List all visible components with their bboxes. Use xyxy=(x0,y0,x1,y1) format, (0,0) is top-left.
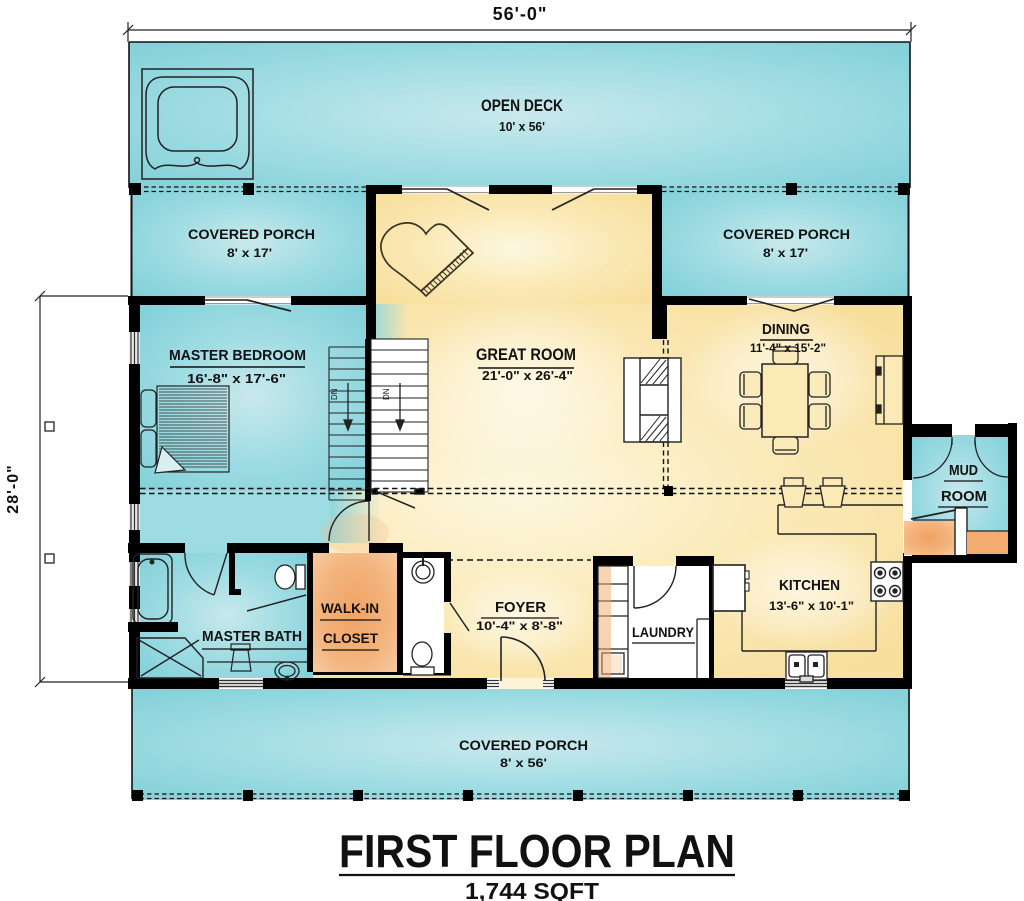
svg-text:GREAT ROOM: GREAT ROOM xyxy=(476,345,576,364)
svg-text:16'-8" x 17'-6": 16'-8" x 17'-6" xyxy=(187,372,286,386)
svg-text:MUD: MUD xyxy=(949,462,978,479)
svg-text:8' x 17': 8' x 17' xyxy=(227,248,272,260)
svg-text:21'-0" x 26'-4": 21'-0" x 26'-4" xyxy=(482,369,573,383)
svg-text:MASTER BEDROOM: MASTER BEDROOM xyxy=(169,347,306,364)
svg-text:28'-0": 28'-0" xyxy=(5,464,22,513)
svg-text:DN: DN xyxy=(382,388,391,400)
svg-text:OPEN DECK: OPEN DECK xyxy=(481,97,563,115)
svg-text:1,744 SQFT: 1,744 SQFT xyxy=(465,878,599,901)
svg-text:WALK-IN: WALK-IN xyxy=(321,600,379,616)
svg-text:FOYER: FOYER xyxy=(495,599,546,616)
svg-text:LAUNDRY: LAUNDRY xyxy=(632,624,695,640)
svg-text:ROOM: ROOM xyxy=(941,488,987,505)
svg-text:56'-0": 56'-0" xyxy=(493,4,548,24)
svg-text:DINING: DINING xyxy=(762,321,810,338)
svg-text:8' x 56': 8' x 56' xyxy=(500,758,547,770)
svg-text:COVERED PORCH: COVERED PORCH xyxy=(188,226,315,242)
svg-text:MASTER BATH: MASTER BATH xyxy=(202,628,302,645)
svg-text:CLOSET: CLOSET xyxy=(323,630,378,646)
svg-text:11'-4" x 15'-2": 11'-4" x 15'-2" xyxy=(750,343,826,355)
svg-text:DN: DN xyxy=(330,388,339,400)
svg-text:FIRST FLOOR PLAN: FIRST FLOOR PLAN xyxy=(339,825,735,877)
svg-text:KITCHEN: KITCHEN xyxy=(779,577,840,594)
svg-text:10'-4" x 8'-8": 10'-4" x 8'-8" xyxy=(476,619,563,633)
svg-text:10' x 56': 10' x 56' xyxy=(499,120,545,134)
svg-text:8' x 17': 8' x 17' xyxy=(763,248,808,260)
svg-text:COVERED PORCH: COVERED PORCH xyxy=(723,226,850,242)
svg-text:13'-6" x 10'-1": 13'-6" x 10'-1" xyxy=(769,601,854,613)
svg-text:COVERED PORCH: COVERED PORCH xyxy=(459,737,588,753)
